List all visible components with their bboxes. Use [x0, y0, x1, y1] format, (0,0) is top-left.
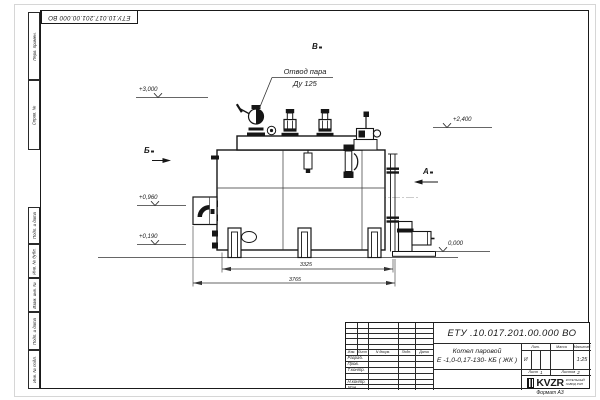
- tb-logo: KVZR КОТЕЛЬНЫЙ ЗАВОД РЭП: [521, 375, 591, 390]
- title-block: Изм. Лист N докум. Подп. Дата Разраб. Пр…: [345, 322, 590, 389]
- format-note: Формат А3: [505, 390, 595, 396]
- section-arrow-b: [152, 158, 171, 163]
- tb-product-name: Котел паровой Е -1,0-0,17-130- КБ ( ЖК ): [433, 344, 521, 368]
- feed-pump: [393, 222, 436, 257]
- steam-outlet-valve: [237, 104, 265, 135]
- burner: [193, 197, 217, 225]
- tb-row-utv: Утв.: [346, 384, 368, 390]
- level-mark-2400: [433, 123, 492, 127]
- tb-scale-label: Масштаб: [573, 343, 591, 350]
- level-mark-0000: [434, 247, 490, 251]
- tb-scale-value: 1:25: [573, 350, 591, 369]
- view-direction-mark: [319, 46, 322, 49]
- safety-valve-2: [317, 109, 334, 136]
- section-arrow-a: [414, 180, 438, 185]
- dimension-text-3325: 3325: [294, 262, 318, 268]
- view-marker-v: В: [312, 42, 322, 51]
- pressure-gauge: [267, 126, 275, 134]
- steam-outlet-callout-line1: Отвод пара: [276, 67, 334, 76]
- dimension-text-3765: 3765: [283, 277, 307, 283]
- tb-header-data: Дата: [415, 349, 433, 355]
- support-leg: [228, 228, 241, 258]
- steam-outlet-callout-line2: Ду 125: [276, 79, 334, 88]
- level-mark-0960: [137, 201, 186, 205]
- elevation-3000: +3,000: [139, 87, 158, 93]
- manhole: [242, 232, 257, 243]
- support-leg: [368, 228, 381, 258]
- view-marker-b: Б: [144, 146, 154, 155]
- view-marker-a: А: [423, 167, 433, 176]
- view-direction-mark: [430, 171, 433, 174]
- level-mark-0190: [137, 240, 186, 244]
- support-leg: [298, 228, 311, 258]
- tb-header-ndocum: N докум.: [368, 349, 398, 355]
- elevation-0960: +0,960: [139, 195, 158, 201]
- tb-doc-number: ЕТУ .10.017.201.00.000 ВО: [433, 323, 591, 343]
- tb-lit-label: Лит.: [521, 343, 550, 350]
- elevation-0000: 0,000: [448, 241, 463, 247]
- down-pipe: [387, 154, 400, 252]
- level-mark-3000: [136, 93, 208, 97]
- tb-header-podp: Подп.: [398, 349, 415, 355]
- view-direction-mark: [151, 150, 154, 153]
- tb-mass-label: Масса: [550, 343, 573, 350]
- elevation-0190: +0,190: [139, 234, 158, 240]
- tb-lit-value: И: [521, 350, 531, 369]
- kvzr-logo-icon: [527, 378, 534, 388]
- kvzr-logo-subtext: КОТЕЛЬНЫЙ ЗАВОД РЭП: [566, 379, 585, 386]
- kvzr-logo-text: KVZR: [536, 377, 563, 389]
- drawing-sheet: ЕТУ.10.017.201.00.000 ВО Перв. примен. С…: [0, 0, 600, 400]
- elevation-2400: +2,400: [453, 117, 472, 123]
- safety-valve-1: [282, 109, 299, 136]
- lever-valve: [354, 112, 381, 151]
